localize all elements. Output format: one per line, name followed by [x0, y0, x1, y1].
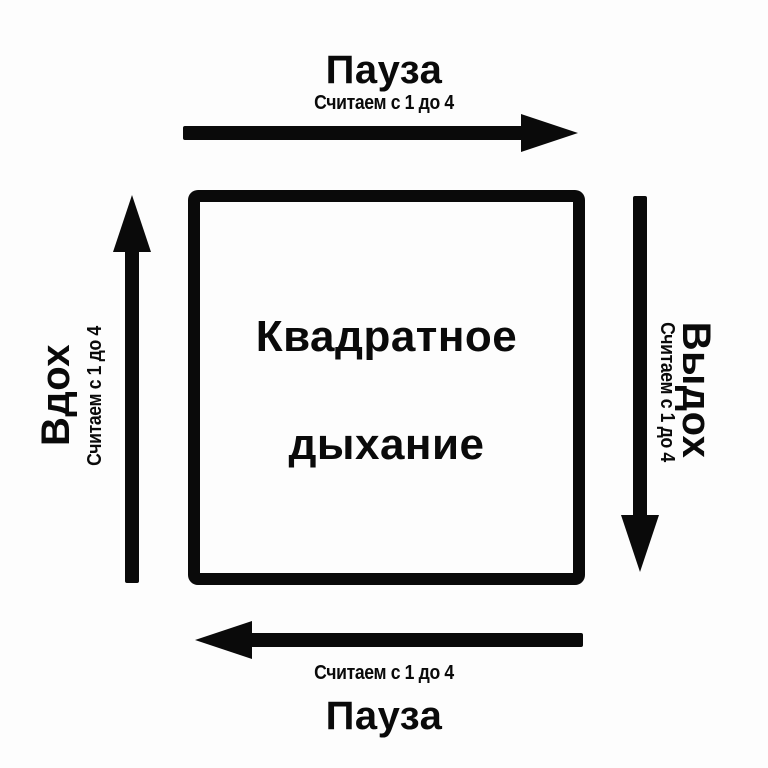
top-phase-label: Пауза	[4, 48, 764, 92]
breathing-square: Квадратное дыхание	[188, 190, 585, 585]
right-phase-label: Выдох	[674, 240, 718, 540]
bottom-phase-label: Пауза	[4, 694, 764, 738]
arrow-left-icon	[195, 620, 583, 660]
top-count-note: Считаем с 1 до 4	[50, 92, 719, 114]
left-phase-label: Вдох	[34, 245, 78, 545]
bottom-count-note: Считаем с 1 до 4	[50, 662, 719, 684]
arrow-down-icon	[620, 196, 660, 572]
diagram-title-line1: Квадратное	[200, 314, 573, 360]
arrow-up-icon	[112, 195, 152, 583]
arrow-right-icon	[183, 113, 578, 153]
diagram-title-line2: дыхание	[200, 422, 573, 468]
left-count-note: Считаем с 1 до 4	[84, 264, 106, 528]
box-breathing-diagram: Пауза Считаем с 1 до 4 Вдох Считаем с 1 …	[0, 0, 768, 768]
